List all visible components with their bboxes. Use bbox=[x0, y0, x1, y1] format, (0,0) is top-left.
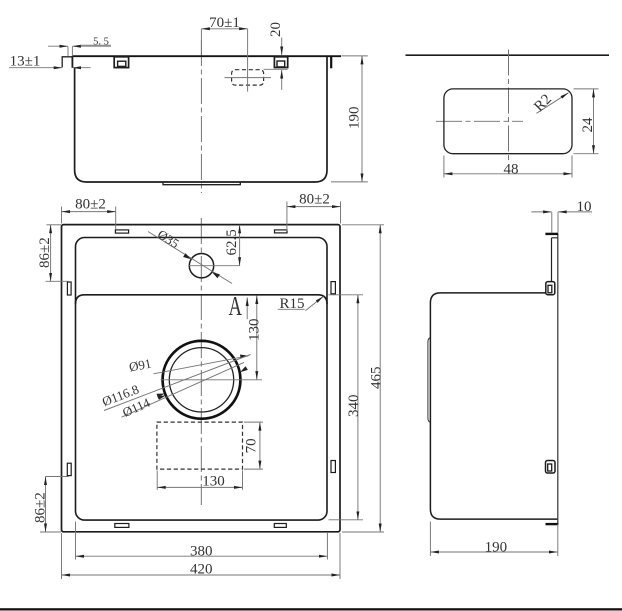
svg-text:190: 190 bbox=[347, 107, 363, 130]
svg-text:70±1: 70±1 bbox=[209, 15, 240, 31]
svg-text:420: 420 bbox=[190, 562, 213, 578]
svg-text:Ø91: Ø91 bbox=[128, 356, 153, 375]
svg-text:24: 24 bbox=[580, 117, 596, 133]
svg-text:5. 5: 5. 5 bbox=[93, 36, 109, 47]
svg-text:48: 48 bbox=[504, 162, 519, 178]
svg-text:10: 10 bbox=[577, 199, 592, 215]
svg-text:20: 20 bbox=[268, 22, 284, 37]
svg-text:A: A bbox=[229, 291, 243, 321]
svg-text:340: 340 bbox=[346, 395, 362, 418]
svg-text:130: 130 bbox=[202, 474, 225, 490]
svg-text:80±2: 80±2 bbox=[75, 197, 106, 213]
svg-text:86±2: 86±2 bbox=[37, 237, 53, 268]
svg-text:380: 380 bbox=[190, 543, 213, 559]
svg-text:190: 190 bbox=[485, 539, 508, 555]
svg-text:62.5: 62.5 bbox=[224, 229, 240, 255]
svg-text:13±1: 13±1 bbox=[10, 54, 41, 70]
svg-text:Ø35: Ø35 bbox=[155, 226, 182, 251]
svg-text:86±2: 86±2 bbox=[32, 492, 48, 523]
svg-text:R2: R2 bbox=[531, 91, 555, 115]
svg-text:80±2: 80±2 bbox=[299, 192, 330, 208]
svg-text:130: 130 bbox=[247, 319, 263, 342]
svg-text:70: 70 bbox=[244, 438, 260, 453]
svg-text:465: 465 bbox=[369, 367, 385, 390]
